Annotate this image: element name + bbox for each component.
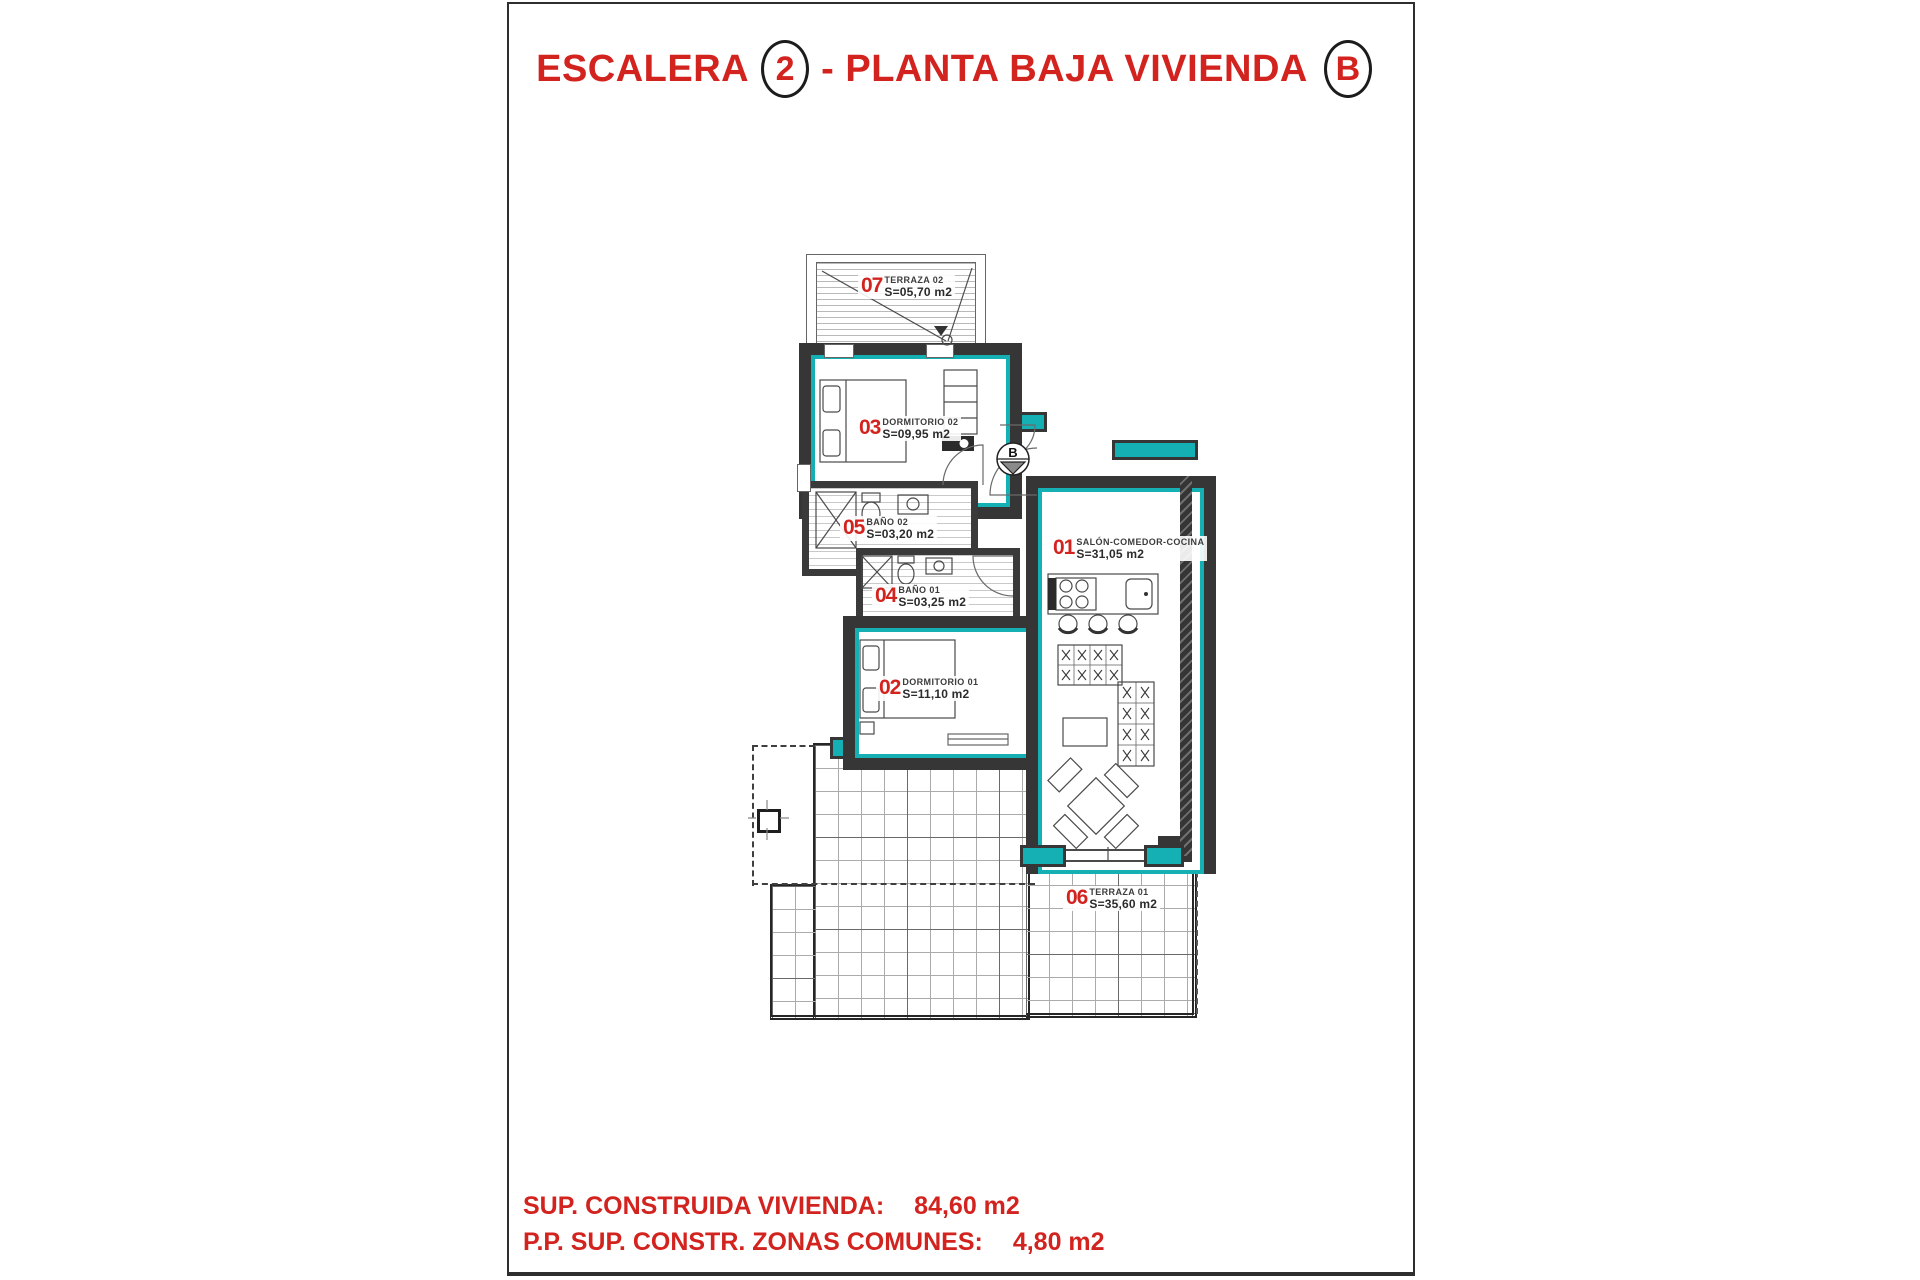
pergola-dashed-bottom-line [752, 883, 1035, 885]
room-label-salon: 01 SALÓN-COMEDOR-COCINA S=31,05 m2 [1050, 536, 1207, 561]
terrace-01-left [813, 743, 1030, 1020]
wall-neighbor-unit [1112, 440, 1198, 460]
property-dashed-line [1196, 852, 1198, 1014]
wall-glazing-end-right [1144, 845, 1184, 867]
surface-line-1: SUP. CONSTRUIDA VIVIENDA:84,60 m2 [523, 1188, 1105, 1224]
room-label-dormitorio-02: 03 DORMITORIO 02 S=09,95 m2 [856, 416, 961, 441]
surface-line-1-value: 84,60 m2 [914, 1192, 1020, 1220]
exterior-wall-hatch [1180, 476, 1192, 856]
window-dorm2-right [926, 344, 954, 358]
title-word-planta-baja: - PLANTA BAJA VIVIENDA [821, 48, 1308, 91]
pillar [757, 809, 781, 833]
room-label-bano-02: 05 BAÑO 02 S=03,20 m2 [840, 516, 937, 541]
window-dorm2-side [797, 464, 811, 492]
wall-glazing-end-left [1020, 845, 1066, 867]
surface-line-2: P.P. SUP. CONSTR. ZONAS COMUNES:4,80 m2 [523, 1224, 1105, 1260]
sheet-title: ESCALERA 2 - PLANTA BAJA VIVIENDA B [507, 38, 1413, 100]
title-word-escalera: ESCALERA [536, 48, 749, 91]
window-dorm2-left [824, 344, 854, 358]
room-label-terraza-02: 07 TERRAZA 02 S=05,70 m2 [858, 274, 955, 299]
room-label-dormitorio-01: 02 DORMITORIO 01 S=11,10 m2 [876, 676, 981, 701]
surface-summary: SUP. CONSTRUIDA VIVIENDA:84,60 m2 P.P. S… [523, 1188, 1105, 1261]
unit-letter-badge: B [1324, 40, 1372, 98]
room-label-terraza-01: 06 TERRAZA 01 S=35,60 m2 [1063, 886, 1160, 911]
terrace-01-lower-left [770, 884, 816, 1020]
room-label-bano-01: 04 BAÑO 01 S=03,25 m2 [872, 584, 969, 609]
stair-number-badge: 2 [761, 40, 809, 98]
surface-line-1-label: SUP. CONSTRUIDA VIVIENDA: [523, 1192, 884, 1220]
surface-line-2-label: P.P. SUP. CONSTR. ZONAS COMUNES: [523, 1228, 983, 1256]
surface-line-2-value: 4,80 m2 [1013, 1228, 1105, 1256]
